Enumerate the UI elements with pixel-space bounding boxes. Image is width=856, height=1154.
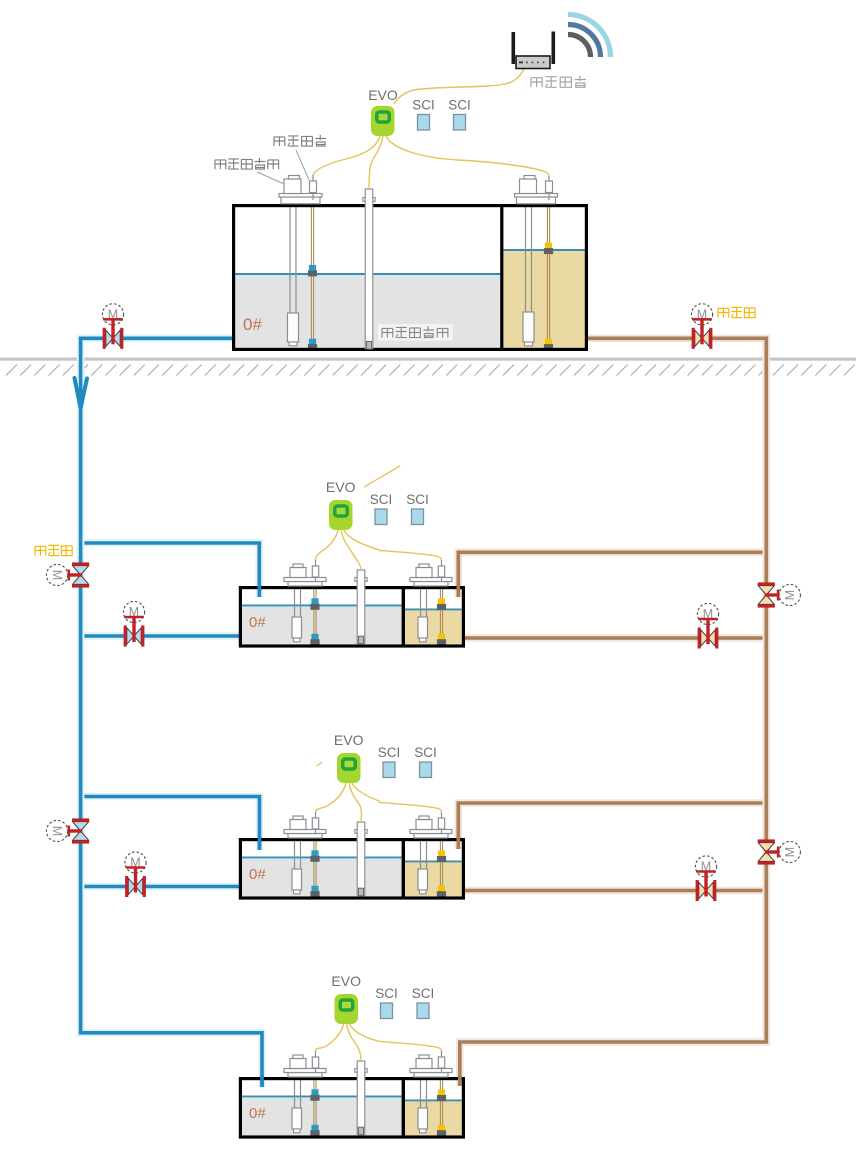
svg-text:0#: 0# <box>249 614 266 631</box>
svg-text:M: M <box>701 860 711 874</box>
svg-text:M: M <box>50 826 64 836</box>
svg-text:M: M <box>783 590 797 600</box>
svg-text:M: M <box>108 308 118 322</box>
svg-text:SCI: SCI <box>370 492 393 507</box>
svg-text:SCI: SCI <box>412 986 435 1001</box>
svg-text:M: M <box>50 570 64 580</box>
svg-text:EVO: EVO <box>368 87 398 103</box>
svg-text:SCI: SCI <box>375 986 398 1001</box>
svg-text:EVO: EVO <box>326 479 356 495</box>
svg-text:M: M <box>129 605 139 619</box>
svg-text:0#: 0# <box>249 1105 266 1122</box>
svg-text:0#: 0# <box>243 315 262 334</box>
svg-text:M: M <box>697 308 707 322</box>
svg-text:M: M <box>130 856 140 870</box>
svg-text:SCI: SCI <box>414 745 437 760</box>
svg-text:EVO: EVO <box>334 732 364 748</box>
svg-text:M: M <box>703 607 713 621</box>
svg-text:SCI: SCI <box>378 745 401 760</box>
svg-text:SCI: SCI <box>448 98 471 113</box>
svg-text:SCI: SCI <box>406 492 429 507</box>
svg-text:0#: 0# <box>249 866 266 883</box>
svg-text:EVO: EVO <box>331 973 361 989</box>
svg-text:M: M <box>783 847 797 857</box>
svg-text:SCI: SCI <box>412 98 435 113</box>
